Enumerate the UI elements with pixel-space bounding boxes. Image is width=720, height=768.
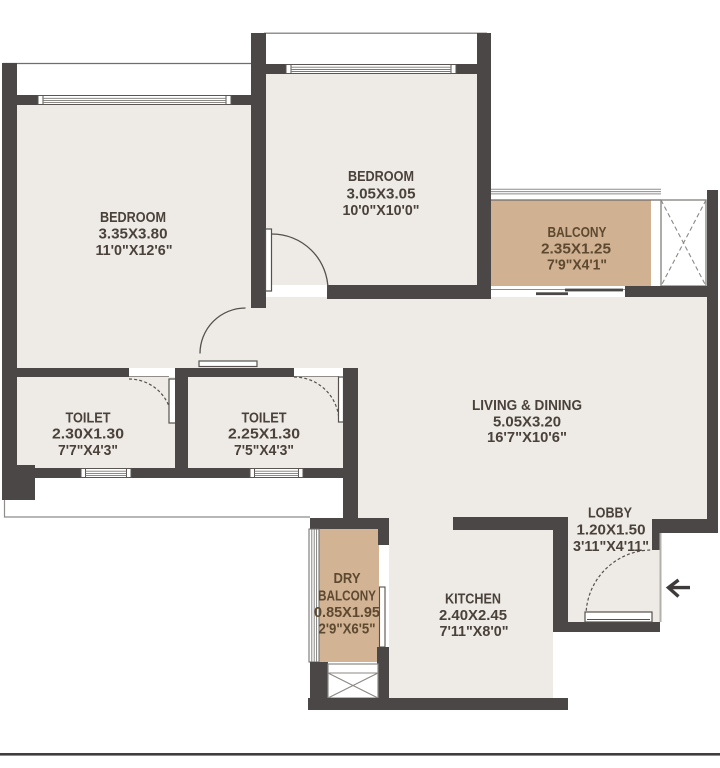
svg-text:7'7"X4'3": 7'7"X4'3" xyxy=(58,443,118,459)
svg-text:16'7"X10'6": 16'7"X10'6" xyxy=(487,430,567,446)
svg-text:LOBBY: LOBBY xyxy=(588,506,632,522)
svg-text:2.40X2.45: 2.40X2.45 xyxy=(439,608,507,624)
svg-text:BEDROOM: BEDROOM xyxy=(100,210,166,226)
svg-text:1.20X1.50: 1.20X1.50 xyxy=(577,523,646,539)
svg-text:3'11"X4'11": 3'11"X4'11" xyxy=(573,539,649,555)
svg-text:0.85X1.95: 0.85X1.95 xyxy=(314,605,380,621)
svg-text:7'11"X8'0": 7'11"X8'0" xyxy=(440,624,509,640)
svg-text:DRY: DRY xyxy=(334,571,361,587)
svg-text:2.35X1.25: 2.35X1.25 xyxy=(541,242,611,258)
svg-text:BALCONY: BALCONY xyxy=(548,225,607,241)
svg-text:10'0"X10'0": 10'0"X10'0" xyxy=(343,203,420,219)
svg-text:3.05X3.05: 3.05X3.05 xyxy=(347,187,416,203)
svg-text:TOILET: TOILET xyxy=(242,411,287,427)
svg-text:BEDROOM: BEDROOM xyxy=(348,169,414,185)
svg-text:2'9"X6'5": 2'9"X6'5" xyxy=(319,622,376,638)
svg-text:BALCONY: BALCONY xyxy=(318,589,376,605)
svg-text:2.25X1.30: 2.25X1.30 xyxy=(228,427,300,443)
svg-text:7'5"X4'3": 7'5"X4'3" xyxy=(234,443,294,459)
svg-text:LIVING & DINING: LIVING & DINING xyxy=(472,398,582,414)
svg-text:3.35X3.80: 3.35X3.80 xyxy=(99,227,168,243)
svg-text:5.05X3.20: 5.05X3.20 xyxy=(493,415,561,431)
svg-text:TOILET: TOILET xyxy=(66,411,111,427)
svg-text:2.30X1.30: 2.30X1.30 xyxy=(52,427,124,443)
svg-text:KITCHEN: KITCHEN xyxy=(445,592,501,608)
svg-text:11'0"X12'6": 11'0"X12'6" xyxy=(96,243,173,259)
svg-text:7'9"X4'1": 7'9"X4'1" xyxy=(547,258,607,274)
